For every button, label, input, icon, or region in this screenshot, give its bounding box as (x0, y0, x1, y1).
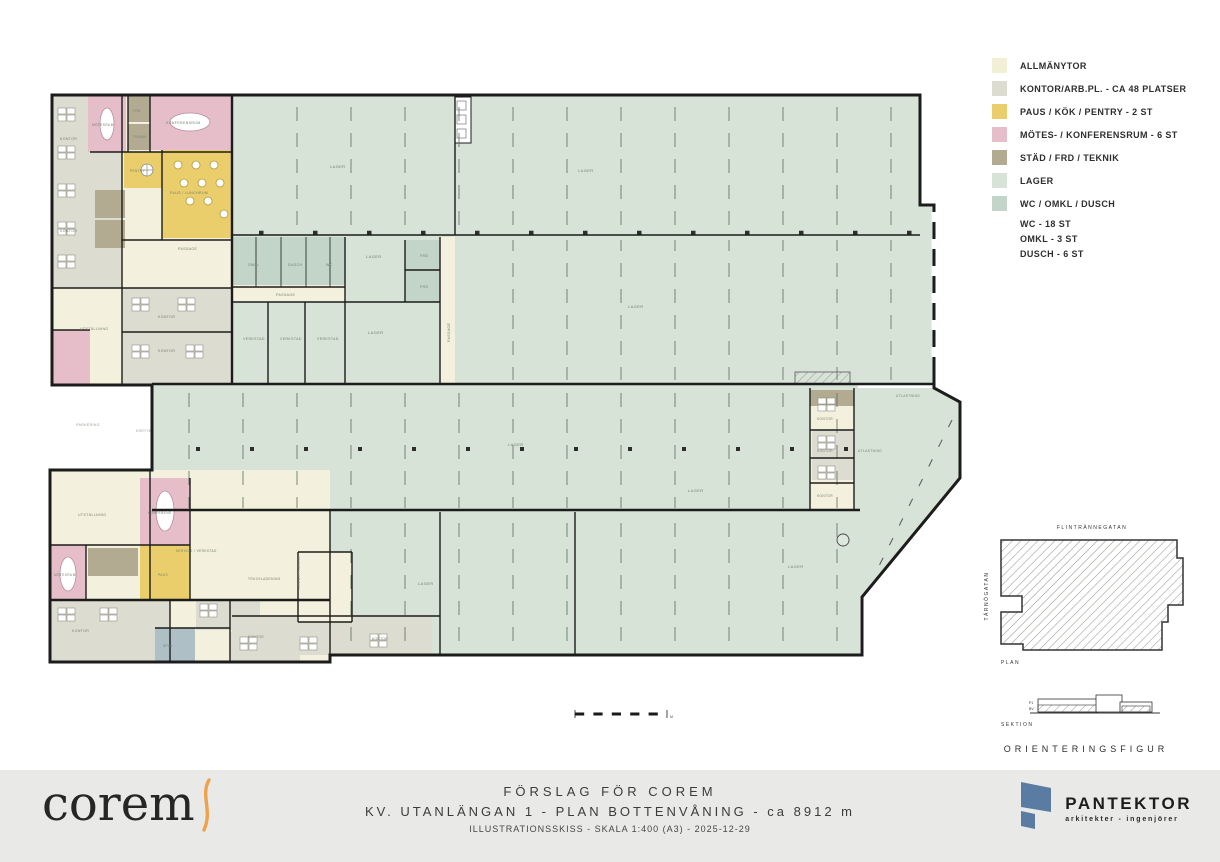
legend-subline: DUSCH - 6 ST (1020, 249, 1217, 259)
room-label: PAUS / LUNCHRUM (170, 191, 208, 195)
room-label: KONTOR (158, 315, 175, 319)
plan-label: PLAN (1001, 660, 1020, 666)
legend-item: LAGER (992, 173, 1217, 188)
room-label: TRUCKLADDNING (248, 577, 281, 581)
legend-subline: WC - 18 ST (1020, 219, 1217, 229)
orientation-figure: FLINTRÄNNEGATAN TÄRNÖGATAN PLAN P1 BV SE… (983, 524, 1183, 754)
room-label: LAGER (688, 488, 704, 493)
section-tag-p1: P1 (1029, 701, 1033, 705)
room-label: KONTOR (60, 137, 77, 141)
legend-swatch (992, 150, 1007, 165)
orientation-section-drawing: P1 BV (1029, 695, 1160, 713)
orientation-plan-shape (1001, 540, 1183, 650)
room-label: M (670, 715, 673, 719)
room-label: LAGER (508, 442, 524, 447)
orientation-caption: ORIENTERINGSFIGUR (1004, 744, 1169, 754)
legend-item: ALLMÄNYTOR (992, 58, 1217, 73)
room-label: KONTOR (248, 635, 264, 639)
room-label: KONFERENS (148, 511, 171, 515)
section-tag-bv: BV (1029, 707, 1034, 711)
legend-label: STÄD / FRD / TEKNIK (1020, 153, 1119, 163)
pantektor-mark-icon (1015, 782, 1055, 834)
room-label: LAGER (578, 168, 594, 173)
room-label: LAGER (368, 330, 384, 335)
room-label: TEKNIK (133, 135, 147, 139)
street-left-label: TÄRNÖGATAN (983, 572, 990, 621)
room-label: LAGER (366, 254, 382, 259)
room-label: FRD (420, 254, 428, 258)
room-label: KONTOR (817, 449, 833, 453)
room-label: MÖTESRUM (54, 573, 76, 577)
legend-swatch (992, 104, 1007, 119)
legend-swatch (992, 173, 1007, 188)
room-label: WC (326, 263, 333, 267)
pantektor-logo-text: PANTEKTOR (1065, 794, 1192, 814)
room-label: KONTOR (60, 229, 77, 233)
title-bar: corem FÖRSLAG FÖR COREM KV. UTANLÄNGAN 1… (0, 770, 1220, 862)
legend-subline: OMKL - 3 ST (1020, 234, 1217, 244)
legend: ALLMÄNYTORKONTOR/ARB.PL. - CA 48 PLATSER… (992, 58, 1217, 264)
room-label: PENTRY (130, 169, 146, 173)
room-label: UTSTÄLLNING (80, 327, 109, 331)
pantektor-logo: PANTEKTOR arkitekter - ingenjörer (1015, 782, 1192, 834)
legend-item: KONTOR/ARB.PL. - CA 48 PLATSER (992, 81, 1217, 96)
room-label: PAUS (158, 573, 168, 577)
room-label: UTSTÄLLNING (78, 513, 107, 517)
room-label: VARUMOTTAGNING (297, 556, 301, 590)
legend-item: PAUS / KÖK / PENTRY - 2 ST (992, 104, 1217, 119)
room-label: KONTOR (817, 494, 833, 498)
scale-bar (575, 710, 667, 718)
drawing-sheet: FLINTRÄNNEGATAN TÄRNÖGATAN PLAN P1 BV SE… (0, 0, 1220, 862)
pantektor-logo-subtext: arkitekter - ingenjörer (1065, 816, 1192, 823)
room-label: LAGER (788, 564, 804, 569)
legend-item: STÄD / FRD / TEKNIK (992, 150, 1217, 165)
room-label: SERVICE / VERKSTAD (176, 549, 217, 553)
room-label: KONTOR (72, 629, 89, 633)
room-label: UTLASTNING (896, 394, 920, 398)
room-label: KONFERENSRUM (166, 121, 201, 125)
legend-label: LAGER (1020, 176, 1054, 186)
room-label: PASSAGE (447, 322, 451, 342)
legend-label: KONTOR/ARB.PL. - CA 48 PLATSER (1020, 84, 1186, 94)
street-top-label: FLINTRÄNNEGATAN (1057, 524, 1127, 531)
room-label: LAGER (628, 304, 644, 309)
legend-label: WC / OMKL / DUSCH (1020, 199, 1115, 209)
legend-item: MÖTES- / KONFERENSRUM - 6 ST (992, 127, 1217, 142)
legend-label: PAUS / KÖK / PENTRY - 2 ST (1020, 107, 1153, 117)
room-label: VERKSTAD (317, 337, 339, 341)
legend-swatch (992, 127, 1007, 142)
room-label: PASSAGE (178, 247, 198, 251)
room-label: MÖTESRUM (92, 123, 114, 127)
legend-item: WC / OMKL / DUSCH (992, 196, 1217, 211)
room-label: FRD (133, 109, 141, 113)
room-label: KONTOR (372, 637, 388, 641)
room-label: UTLASTNING (858, 449, 882, 453)
legend-label: ALLMÄNYTOR (1020, 61, 1087, 71)
room-label: PASSAGE (276, 293, 296, 297)
room-label: KONTOR (158, 349, 175, 353)
legend-swatch (992, 196, 1007, 211)
legend-label: MÖTES- / KONFERENSRUM - 6 ST (1020, 130, 1178, 140)
room-label: DUSCH (288, 263, 303, 267)
room-label: OMKL (248, 263, 260, 267)
room-label: KÖRYTA (136, 429, 152, 433)
room-label: FRD (420, 285, 428, 289)
room-label: LAGER (418, 581, 434, 586)
room-label: VERKSTAD (280, 337, 302, 341)
room-label: KONTOR (817, 417, 833, 421)
legend-swatch (992, 58, 1007, 73)
section-label: SEKTION (1001, 722, 1033, 728)
room-label: LAGER (330, 164, 346, 169)
room-label: SPOL (163, 644, 173, 648)
room-label: PARKERING (76, 423, 100, 427)
room-label: VERKSTAD (243, 337, 265, 341)
legend-swatch (992, 81, 1007, 96)
